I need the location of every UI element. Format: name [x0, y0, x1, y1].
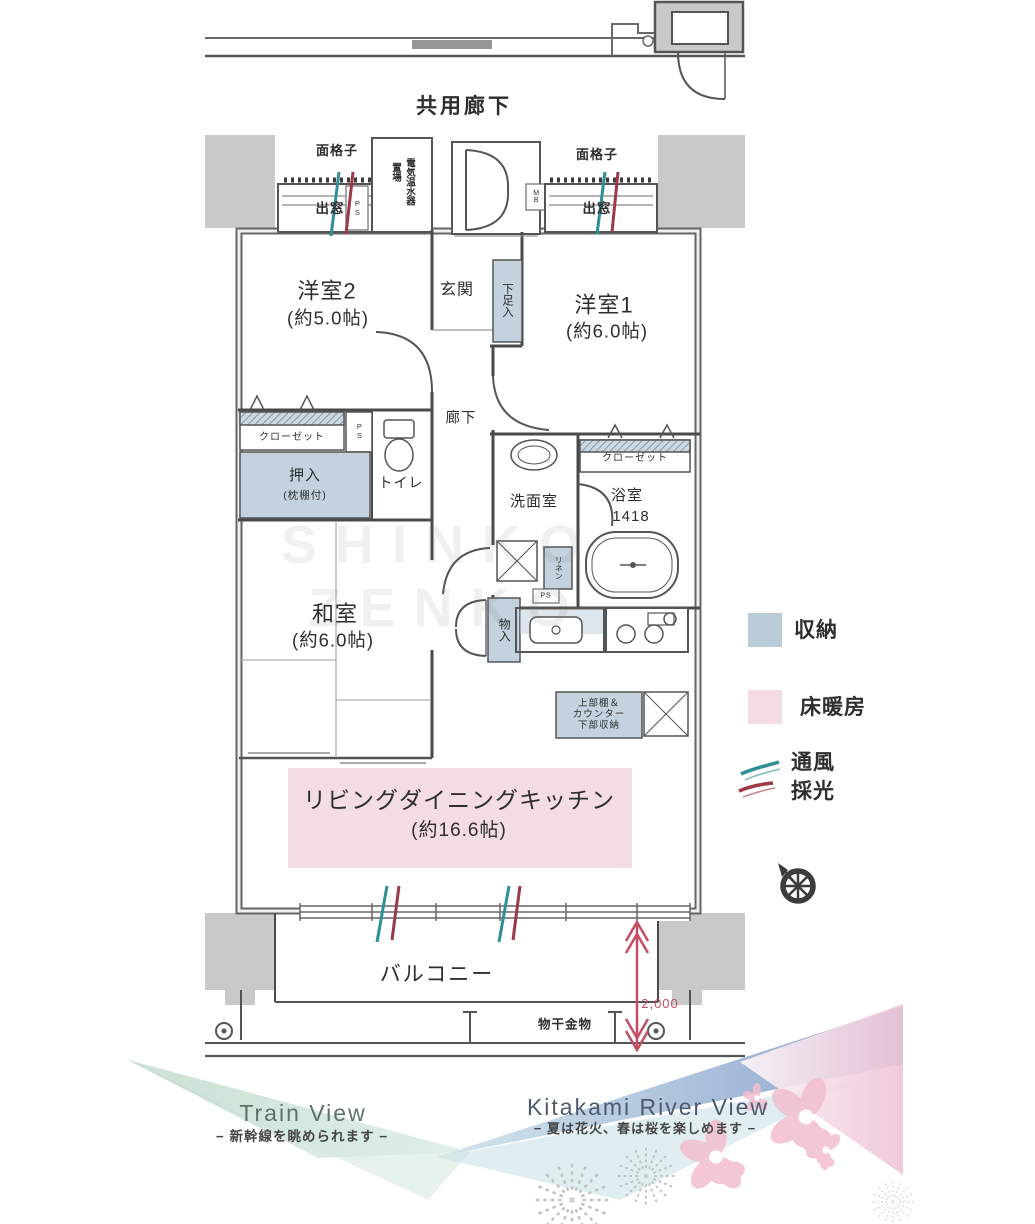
western2-name: 洋室2 — [297, 279, 356, 302]
hallway-label: 廊下 — [446, 411, 477, 426]
ps-label-top: PS — [353, 199, 361, 217]
floorplan-page: SHINKO ZENKO 共用廊下 面格子 出窓 電気温水器 置場 PS MB … — [0, 0, 1035, 1224]
legend-daylight-label: 採光 — [791, 781, 835, 803]
grille-left-label: 面格子 — [316, 144, 358, 158]
oshiire-label: 押入 — [289, 468, 321, 484]
monoire-label: 物入 — [498, 618, 511, 642]
counter-storage-line2: カウンター — [573, 710, 626, 720]
counter-storage-line1: 上部棚＆ — [578, 699, 620, 709]
river-view-title: Kitakami River View — [527, 1095, 769, 1119]
elevator-door-arc — [678, 52, 725, 99]
balcony-label: バルコニー — [380, 964, 495, 986]
grille-right-label: 面格子 — [576, 148, 618, 162]
legend-heating-swatch — [748, 690, 782, 724]
legend-storage-swatch — [748, 613, 782, 647]
counter-storage-line3: 下部収納 — [578, 721, 620, 731]
legend-graphics — [739, 613, 782, 797]
legend-ventilation-label: 通風 — [791, 752, 835, 774]
legend-heating-label: 床暖房 — [800, 697, 866, 719]
western1-size: (約6.0帖) — [566, 321, 648, 340]
river-view-subtitle: − 夏は花火、春は桜を楽しめます − — [534, 1122, 756, 1136]
toilet-fixture — [384, 420, 414, 471]
entrance-label: 玄関 — [440, 283, 474, 300]
japanese-room-name: 和室 — [312, 602, 358, 625]
toilet-label: トイレ — [379, 476, 424, 491]
common-corridor-label: 共用廊下 — [416, 96, 512, 118]
linen-label: リネン — [554, 556, 562, 580]
western2-size: (約5.0帖) — [287, 308, 369, 327]
oshiire-box — [240, 452, 370, 518]
ps-label-mid: PS — [355, 422, 363, 440]
bay-window-left-label: 出窓 — [316, 202, 345, 216]
closet-right-label: クローゼット — [602, 454, 668, 465]
train-view-title: Train View — [239, 1101, 366, 1125]
western1-name: 洋室1 — [574, 293, 633, 316]
mb-label: MB — [532, 190, 539, 204]
floor-heating-area — [288, 768, 632, 868]
elevator — [655, 2, 743, 99]
compass-icon — [778, 863, 813, 901]
bathroom-size: 1418 — [612, 509, 649, 525]
legend-vent-line — [741, 762, 779, 774]
dimension-label: 2,000 — [641, 997, 679, 1011]
water-heater-label: 電気温水器 — [404, 158, 414, 206]
bay-window-right-label: 出窓 — [583, 202, 612, 216]
bathtub — [586, 532, 678, 598]
train-view-subtitle: − 新幹線を眺められます − — [216, 1130, 388, 1144]
western2-door-arc — [376, 332, 432, 392]
watermark: SHINKO — [281, 514, 599, 576]
washroom-label: 洗面室 — [510, 494, 558, 510]
closet-left-label: クローゼット — [259, 433, 325, 444]
western1-door-arc — [493, 376, 549, 430]
ldk-size: (約16.6帖) — [411, 821, 507, 841]
water-heater-box — [372, 138, 432, 232]
bathroom-label: 浴室 — [611, 488, 643, 504]
ps-label-low: PS — [540, 592, 551, 599]
water-heater-label2: 置場 — [390, 163, 400, 182]
dimension-arrow — [626, 922, 648, 1050]
japanese-room-size: (約6.0帖) — [292, 630, 374, 649]
ldk-name: リビングダイニングキッチン — [303, 788, 615, 812]
laundry-hardware-label: 物干金物 — [538, 1018, 592, 1031]
balcony-windows — [300, 903, 690, 921]
oshiire-note: (枕棚付) — [283, 490, 327, 501]
shoe-box-label: 下足入 — [501, 283, 513, 318]
legend-storage-label: 収納 — [794, 620, 838, 642]
